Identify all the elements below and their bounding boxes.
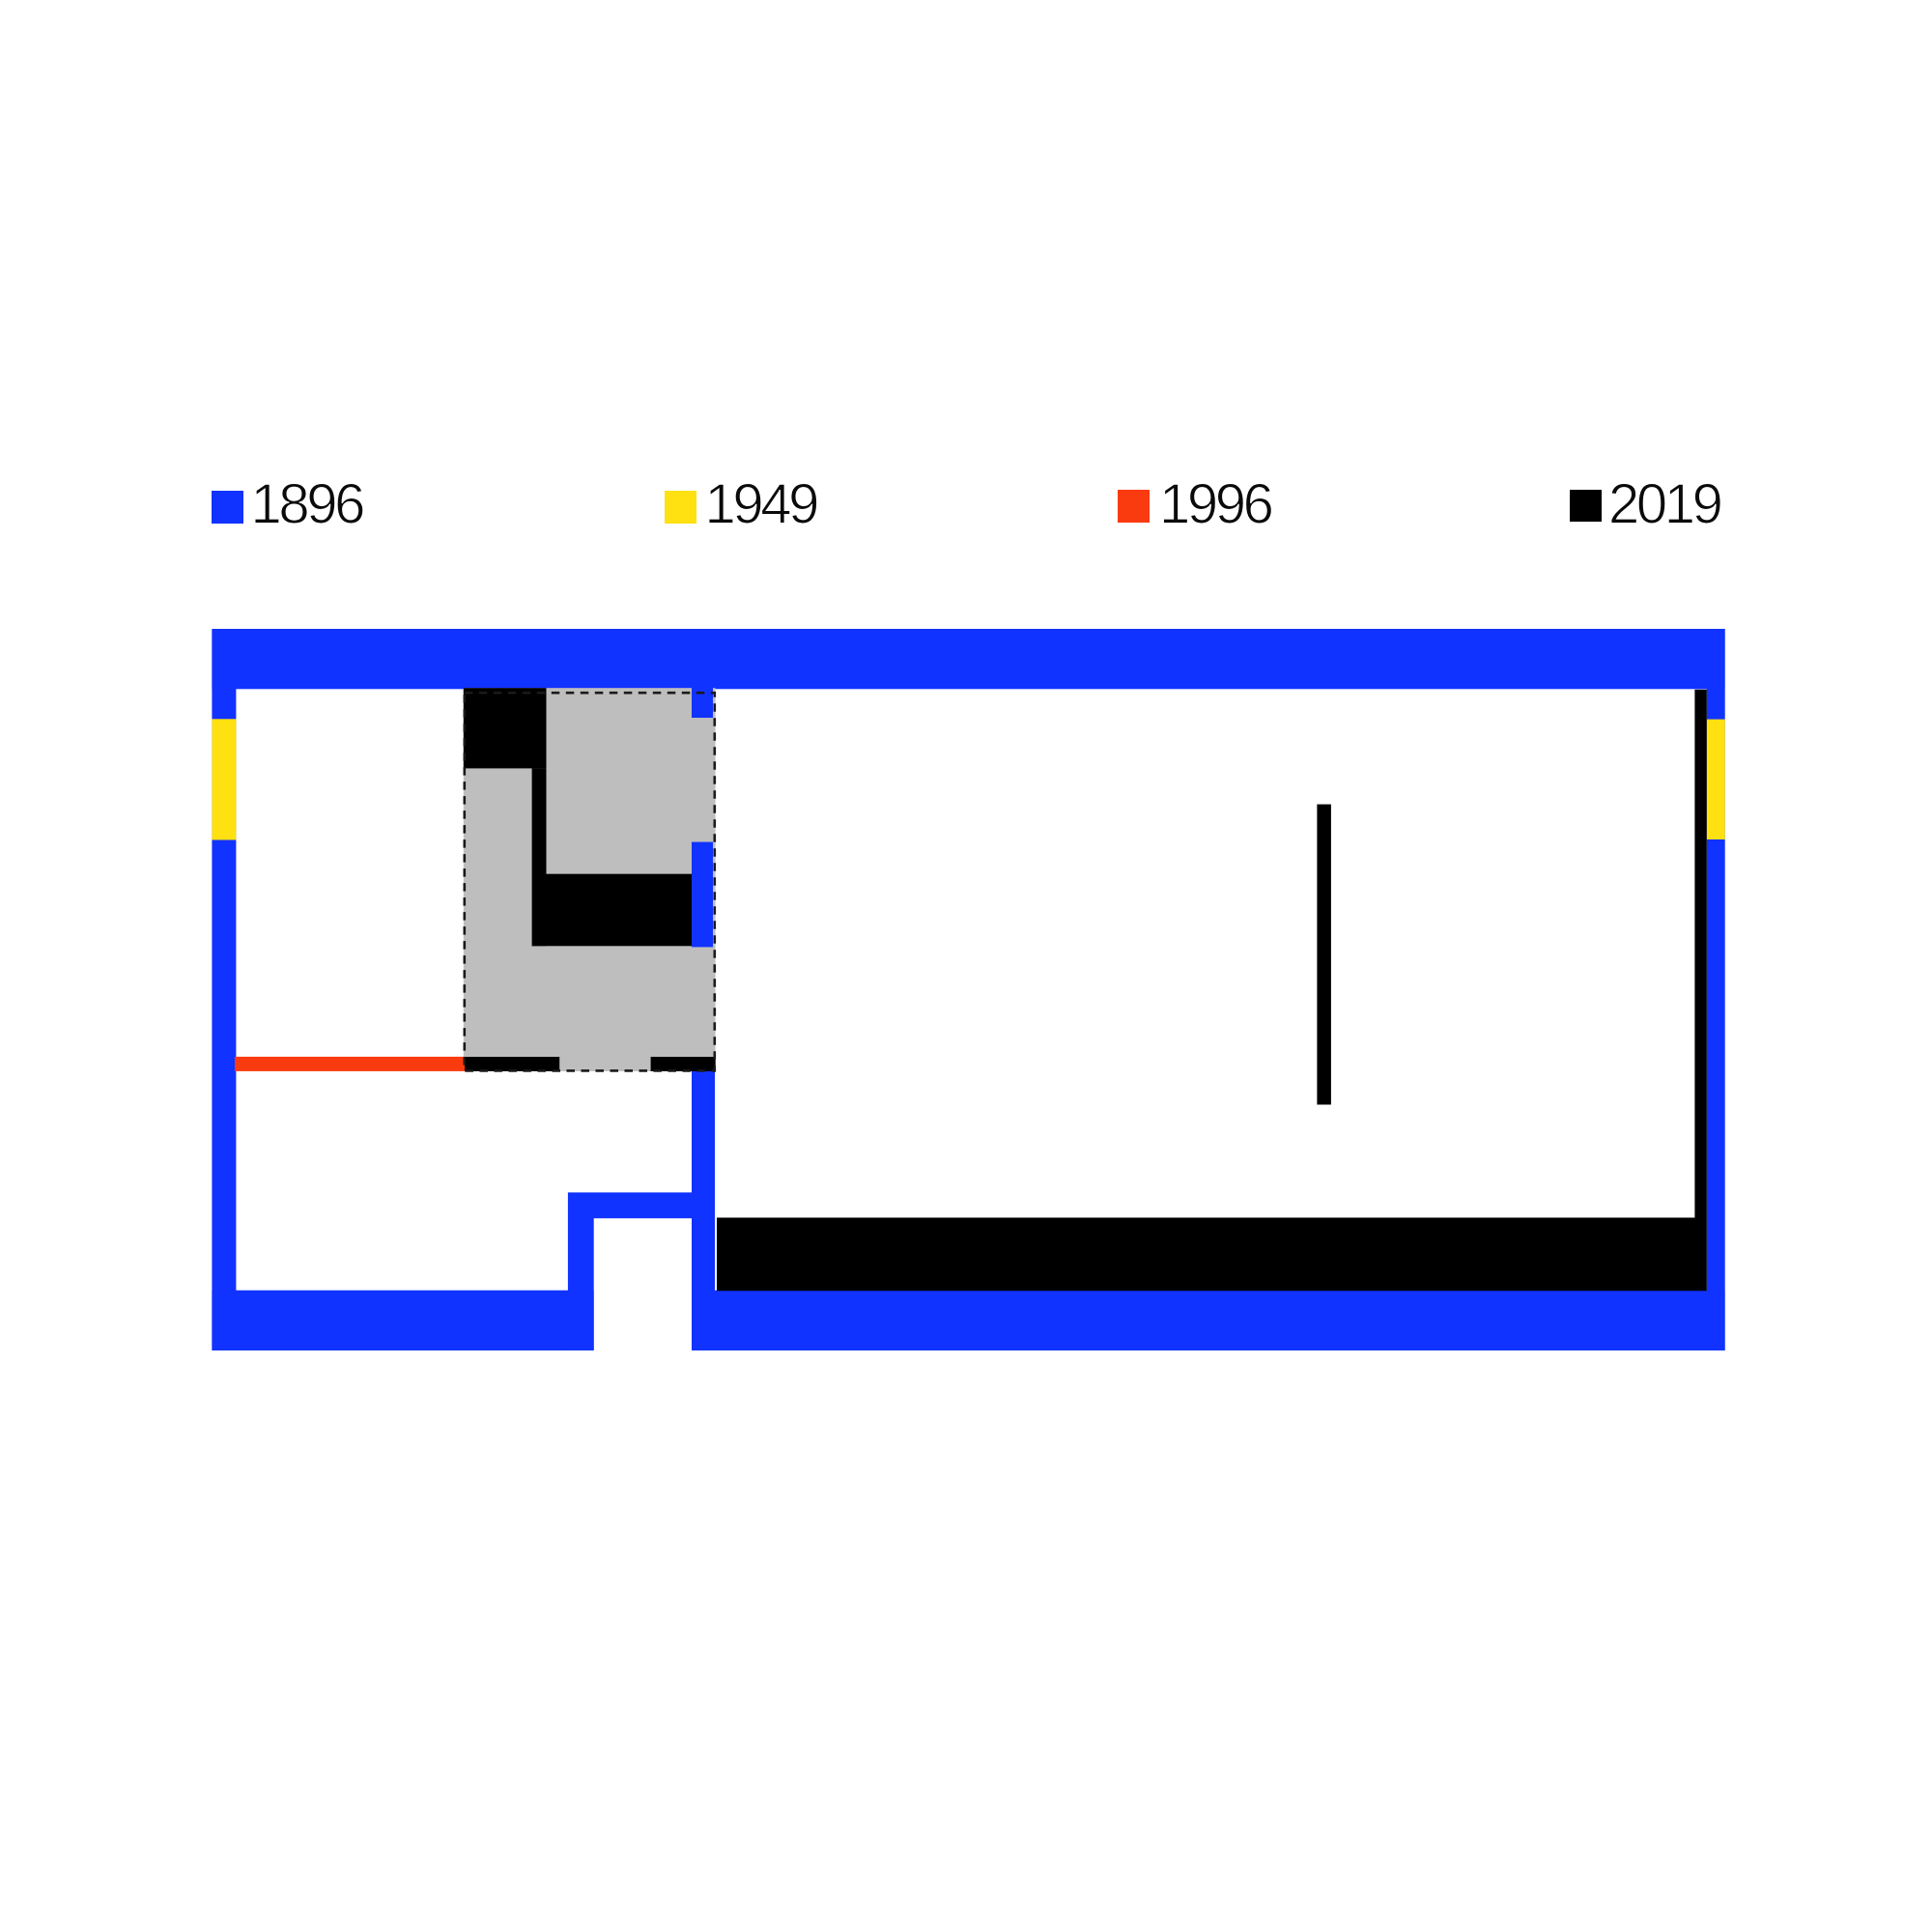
svg-text:1949: 1949 [705, 473, 818, 536]
svg-text:1996: 1996 [1159, 473, 1272, 536]
svg-text:2019: 2019 [1608, 473, 1721, 536]
svg-text:1896: 1896 [251, 473, 364, 536]
